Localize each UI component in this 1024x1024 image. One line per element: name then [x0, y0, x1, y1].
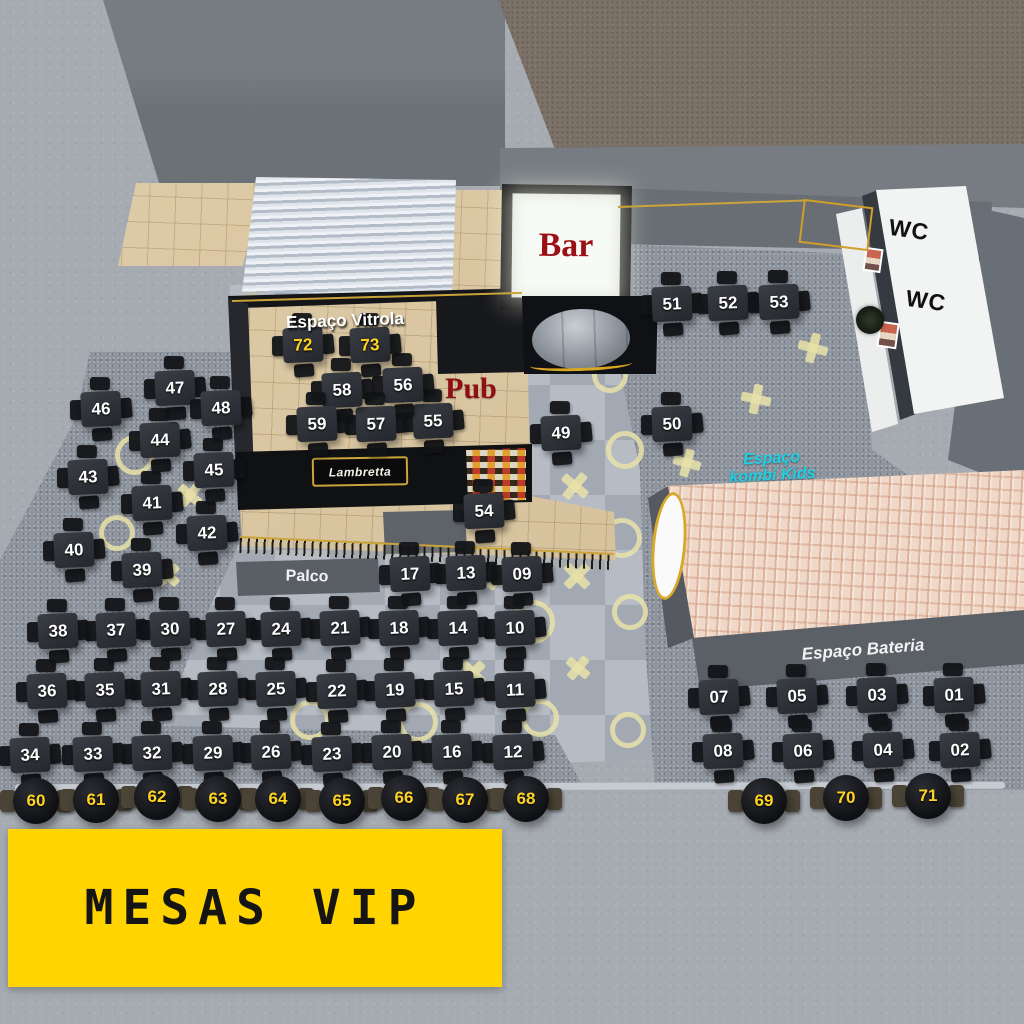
table-number: 64 — [269, 789, 288, 809]
chair — [384, 658, 404, 671]
chair — [381, 720, 401, 733]
chair — [361, 363, 382, 378]
table-top: 34 — [9, 737, 50, 774]
table-number: 19 — [385, 680, 405, 701]
chair — [661, 392, 681, 405]
table-43[interactable]: 43 — [55, 444, 122, 511]
chair — [63, 518, 83, 531]
vip-banner-label: MESAS VIP — [84, 880, 425, 936]
pub-label: Pub — [445, 372, 497, 406]
chair — [768, 270, 788, 283]
table-40[interactable]: 40 — [41, 517, 108, 584]
table-top: 28 — [197, 671, 238, 708]
table-25[interactable]: 25 — [243, 656, 310, 723]
table-number: 62 — [148, 787, 167, 807]
table-number: 52 — [718, 293, 738, 314]
table-top: 50 — [651, 406, 692, 443]
table-number: 01 — [944, 685, 964, 706]
table-number: 05 — [787, 686, 807, 707]
table-top: 68 — [503, 776, 549, 822]
table-number: 65 — [333, 791, 352, 811]
table-top: 27 — [205, 611, 246, 648]
table-top: 11 — [494, 672, 535, 709]
table-19[interactable]: 19 — [362, 657, 429, 724]
chair — [215, 597, 235, 610]
wc-lower-label: WC — [904, 285, 948, 317]
table-top: 33 — [72, 736, 113, 773]
table-number: 50 — [662, 414, 682, 435]
table-35[interactable]: 35 — [72, 657, 139, 724]
chair — [141, 471, 161, 484]
chair — [441, 720, 461, 733]
table-number: 04 — [873, 740, 893, 761]
table-number: 46 — [91, 399, 111, 420]
table-top: 04 — [862, 732, 903, 769]
chair — [321, 722, 341, 735]
table-18[interactable]: 18 — [366, 595, 433, 662]
table-top: 30 — [149, 611, 190, 648]
table-15[interactable]: 15 — [421, 656, 488, 723]
table-number: 25 — [266, 679, 286, 700]
chair — [90, 377, 110, 390]
chair — [19, 723, 39, 736]
chair — [943, 663, 963, 676]
table-number: 71 — [919, 786, 938, 806]
table-number: 51 — [662, 294, 682, 315]
table-49[interactable]: 49 — [528, 400, 595, 467]
table-number: 61 — [87, 790, 106, 810]
table-number: 07 — [709, 687, 729, 708]
chair — [96, 708, 117, 723]
table-number: 08 — [713, 741, 733, 762]
table-number: 23 — [322, 744, 342, 765]
table-number: 06 — [793, 741, 813, 762]
table-top: 46 — [80, 391, 121, 428]
table-top: 44 — [139, 422, 180, 459]
chair — [131, 538, 151, 551]
table-10[interactable]: 10 — [482, 595, 549, 662]
chair — [141, 721, 161, 734]
table-number: 20 — [382, 742, 402, 763]
table-top: 70 — [823, 775, 869, 821]
vip-table-69[interactable]: 69 — [728, 776, 800, 826]
chair — [663, 442, 684, 457]
table-59[interactable]: 59 — [284, 391, 351, 458]
table-39[interactable]: 39 — [109, 537, 176, 604]
table-number: 70 — [837, 788, 856, 808]
table-top: 38 — [37, 613, 78, 650]
table-top: 62 — [134, 774, 180, 820]
chair — [133, 588, 154, 603]
chair — [210, 376, 230, 389]
table-top: 22 — [316, 673, 357, 710]
table-number: 43 — [78, 467, 98, 488]
chair — [202, 721, 222, 734]
table-top: 24 — [260, 611, 301, 648]
table-number: 44 — [150, 430, 170, 451]
table-number: 37 — [106, 620, 126, 641]
table-top: 06 — [782, 733, 823, 770]
chair — [326, 659, 346, 672]
table-number: 16 — [442, 742, 462, 763]
table-number: 30 — [160, 619, 180, 640]
chair — [770, 320, 791, 335]
table-top: 01 — [933, 677, 974, 714]
chair — [708, 665, 728, 678]
chair — [443, 657, 463, 670]
chair — [308, 442, 329, 457]
table-top: 71 — [905, 773, 951, 819]
table-top: 73 — [349, 327, 390, 364]
table-number: 42 — [197, 523, 217, 544]
table-top: 17 — [389, 556, 430, 593]
table-top: 35 — [84, 672, 125, 709]
chair — [38, 709, 59, 724]
chair — [329, 596, 349, 609]
table-number: 34 — [20, 745, 40, 766]
table-top: 19 — [374, 672, 415, 709]
chair — [151, 458, 172, 473]
table-top: 59 — [296, 406, 337, 443]
table-top: 54 — [463, 493, 504, 530]
table-number: 45 — [204, 460, 224, 481]
table-top: 15 — [433, 671, 474, 708]
chair — [306, 392, 326, 405]
chair — [717, 271, 737, 284]
chair — [447, 596, 467, 609]
table-37[interactable]: 37 — [83, 597, 150, 664]
table-top: 10 — [494, 610, 535, 647]
chair — [260, 720, 280, 733]
table-top: 64 — [255, 776, 301, 822]
table-number: 47 — [165, 378, 185, 399]
table-top: 48 — [200, 390, 241, 427]
table-top: 23 — [311, 736, 352, 773]
chair — [143, 521, 164, 536]
vitrola-label: Espaço Vitrola — [286, 309, 404, 333]
table-number: 73 — [360, 335, 380, 356]
chair — [661, 272, 681, 285]
table-number: 41 — [142, 493, 162, 514]
table-28[interactable]: 28 — [185, 656, 252, 723]
table-top: 16 — [431, 734, 472, 771]
table-22[interactable]: 22 — [304, 658, 371, 725]
table-number: 66 — [395, 788, 414, 808]
chair — [502, 720, 522, 733]
table-number: 27 — [216, 619, 236, 640]
table-top: 07 — [698, 679, 739, 716]
table-top: 60 — [13, 778, 59, 824]
table-45[interactable]: 45 — [181, 437, 248, 504]
table-top: 66 — [381, 775, 427, 821]
table-42[interactable]: 42 — [174, 500, 241, 567]
table-top: 39 — [121, 552, 162, 589]
table-number: 29 — [203, 743, 223, 764]
table-top: 31 — [140, 671, 181, 708]
chair — [265, 657, 285, 670]
table-number: 32 — [142, 743, 162, 764]
table-top: 40 — [53, 532, 94, 569]
table-top: 41 — [131, 485, 172, 522]
table-number: 02 — [950, 740, 970, 761]
table-top: 51 — [651, 286, 692, 323]
chair — [504, 596, 524, 609]
table-53[interactable]: 53 — [746, 269, 813, 336]
wc-upper-label: WC — [887, 214, 931, 246]
table-number: 63 — [209, 789, 228, 809]
chair — [270, 597, 290, 610]
table-36[interactable]: 36 — [14, 658, 81, 725]
table-21[interactable]: 21 — [307, 595, 374, 662]
chair — [719, 321, 740, 336]
table-38[interactable]: 38 — [25, 598, 92, 665]
table-top: 20 — [371, 734, 412, 771]
table-50[interactable]: 50 — [639, 391, 706, 458]
chair — [294, 363, 315, 378]
chair — [47, 599, 67, 612]
table-number: 17 — [400, 564, 420, 585]
table-top: 37 — [95, 612, 136, 649]
table-top: 43 — [67, 459, 108, 496]
venue-seating-map: Lambretta Palco Bar WC WC Espaço Bateria… — [0, 0, 1024, 1024]
table-number: 39 — [132, 560, 152, 581]
table-number: 40 — [64, 540, 84, 561]
chair — [164, 356, 184, 369]
table-number: 59 — [307, 414, 327, 435]
chair — [150, 657, 170, 670]
table-top: 29 — [192, 735, 233, 772]
table-top: 49 — [540, 415, 581, 452]
table-48[interactable]: 48 — [188, 375, 255, 442]
chair — [207, 657, 227, 670]
chair — [205, 488, 226, 503]
table-number: 31 — [151, 679, 171, 700]
table-top: 14 — [437, 610, 478, 647]
table-top: 05 — [776, 678, 817, 715]
table-54[interactable]: 54 — [451, 478, 518, 545]
table-number: 09 — [512, 564, 532, 585]
table-number: 21 — [330, 618, 350, 639]
chair — [107, 648, 128, 663]
chair — [367, 442, 388, 457]
table-top: 53 — [758, 284, 799, 321]
chair — [82, 722, 102, 735]
table-number: 48 — [211, 398, 231, 419]
table-number: 67 — [456, 790, 475, 810]
chair — [196, 501, 216, 514]
table-number: 53 — [769, 292, 789, 313]
table-number: 22 — [327, 681, 347, 702]
chair — [79, 495, 100, 510]
table-number: 24 — [271, 619, 291, 640]
table-number: 26 — [261, 742, 281, 763]
chair — [473, 479, 493, 492]
table-number: 12 — [503, 742, 523, 763]
chair — [552, 451, 573, 466]
chair — [399, 542, 419, 555]
table-number: 15 — [444, 679, 464, 700]
table-top: 21 — [319, 610, 360, 647]
vip-table-64[interactable]: 64 — [242, 774, 314, 824]
chair — [949, 718, 969, 731]
table-top: 69 — [741, 778, 787, 824]
table-top: 61 — [73, 777, 119, 823]
table-number: 38 — [48, 621, 68, 642]
chair — [511, 542, 531, 555]
chair — [712, 719, 732, 732]
chair — [388, 596, 408, 609]
table-number: 60 — [27, 791, 46, 811]
table-top: 67 — [442, 777, 488, 823]
table-top: 42 — [186, 515, 227, 552]
table-number: 69 — [755, 791, 774, 811]
table-top: 36 — [26, 673, 67, 710]
table-top: 45 — [193, 452, 234, 489]
chair — [77, 445, 97, 458]
chair — [786, 664, 806, 677]
table-number: 36 — [37, 681, 57, 702]
table-number: 03 — [867, 685, 887, 706]
chair — [49, 649, 70, 664]
vip-banner: MESAS VIP — [8, 829, 502, 987]
table-top: 09 — [501, 556, 542, 593]
chair — [92, 427, 113, 442]
table-top: 26 — [250, 734, 291, 771]
table-top: 02 — [939, 732, 980, 769]
table-number: 18 — [389, 618, 409, 639]
table-number: 14 — [448, 618, 468, 639]
table-top: 32 — [131, 735, 172, 772]
vip-table-71[interactable]: 71 — [892, 771, 964, 821]
table-top: 13 — [445, 555, 486, 592]
table-top: 18 — [378, 610, 419, 647]
table-number: 11 — [506, 680, 525, 701]
table-number: 49 — [551, 423, 571, 444]
table-top: 65 — [319, 778, 365, 824]
chair — [65, 568, 86, 583]
table-number: 33 — [83, 744, 103, 765]
chair — [504, 658, 524, 671]
chair — [166, 406, 187, 421]
chair — [872, 718, 892, 731]
table-number: 10 — [505, 618, 525, 639]
table-number: 13 — [456, 563, 476, 584]
table-number: 72 — [293, 335, 313, 356]
table-46[interactable]: 46 — [68, 376, 135, 443]
chair — [550, 401, 570, 414]
chair — [866, 663, 886, 676]
table-number: 68 — [517, 789, 536, 809]
chair — [212, 426, 233, 441]
table-11[interactable]: 11 — [482, 657, 549, 724]
chair — [424, 439, 445, 454]
table-number: 28 — [208, 679, 228, 700]
vip-table-68[interactable]: 68 — [490, 774, 562, 824]
table-top: 12 — [492, 734, 533, 771]
table-top: 03 — [856, 677, 897, 714]
table-top: 25 — [255, 671, 296, 708]
chair — [663, 322, 684, 337]
table-number: 35 — [95, 680, 115, 701]
chair — [475, 529, 496, 544]
table-top: 63 — [195, 776, 241, 822]
table-top: 52 — [707, 285, 748, 322]
chair — [792, 719, 812, 732]
vip-table-70[interactable]: 70 — [810, 773, 882, 823]
chair — [198, 551, 219, 566]
table-08[interactable]: 08 — [690, 718, 757, 785]
table-number: 54 — [474, 501, 494, 522]
table-top: 08 — [702, 733, 743, 770]
